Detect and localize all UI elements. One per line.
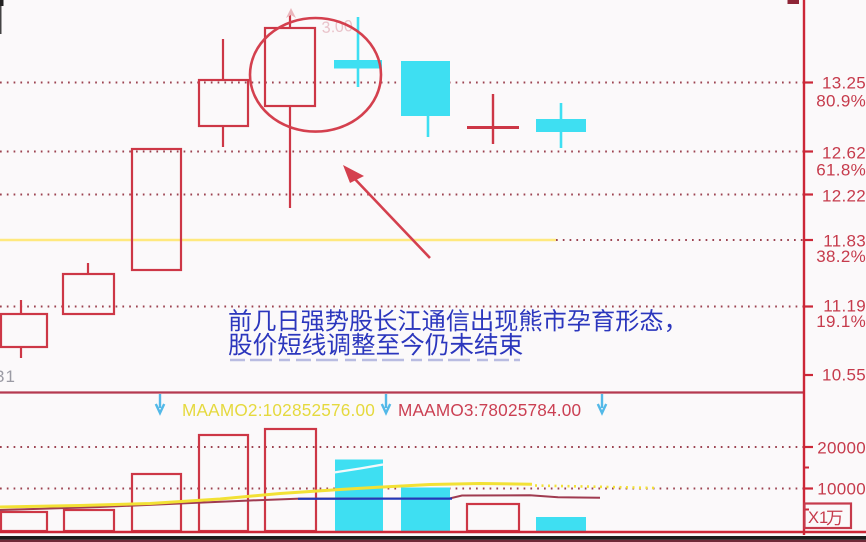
svg-text:13.25: 13.25 — [822, 74, 866, 93]
svg-text:61.8%: 61.8% — [816, 161, 866, 180]
svg-text:MAAMO2:102852576.00: MAAMO2:102852576.00 — [182, 400, 375, 420]
svg-text:38.2%: 38.2% — [816, 247, 866, 266]
svg-text:20000: 20000 — [817, 439, 866, 458]
svg-text:12.22: 12.22 — [822, 187, 866, 206]
svg-text:10.55: 10.55 — [822, 366, 866, 385]
svg-text:X1: X1 — [808, 509, 828, 527]
svg-text:MAAMO3:78025784.00: MAAMO3:78025784.00 — [398, 400, 581, 420]
svg-text:31: 31 — [0, 367, 16, 386]
svg-text:19.1%: 19.1% — [816, 312, 866, 331]
svg-text:80.9%: 80.9% — [816, 92, 866, 111]
svg-text:10000: 10000 — [817, 480, 866, 499]
